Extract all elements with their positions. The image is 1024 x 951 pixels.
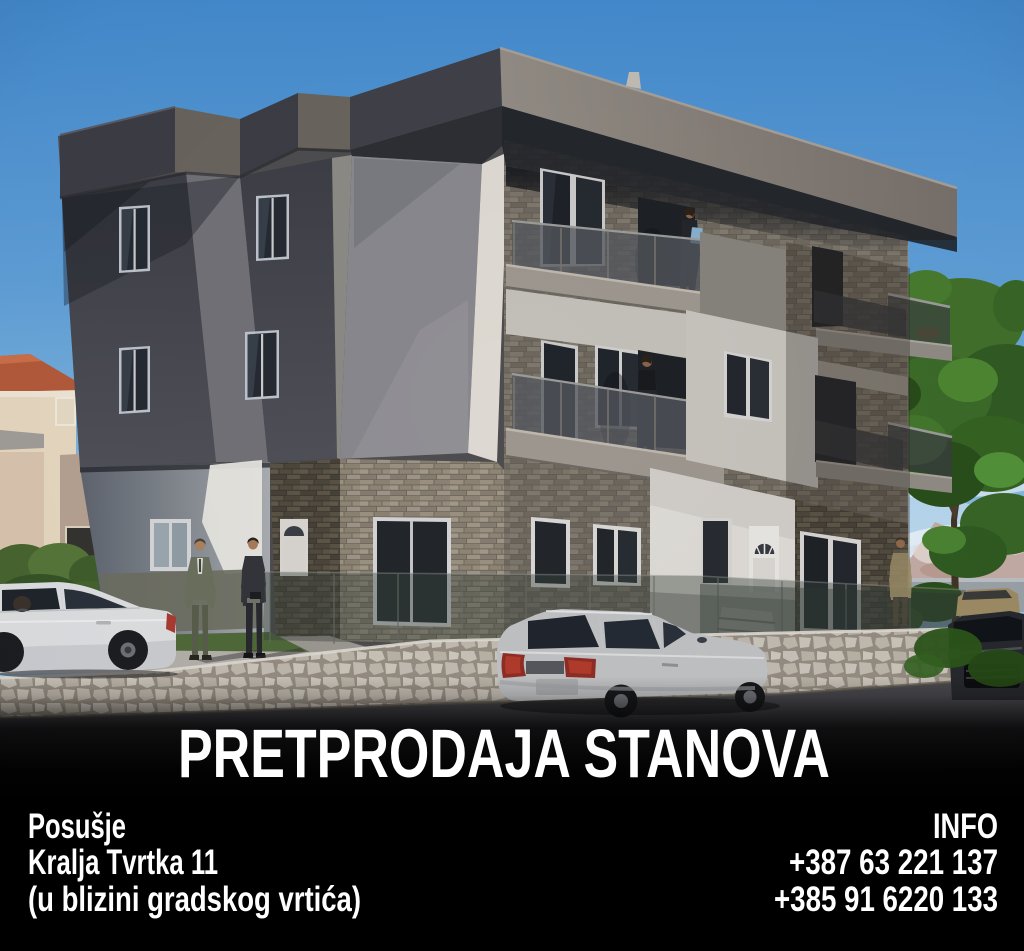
svg-text:PRETPRODAJA STANOVA: PRETPRODAJA STANOVA bbox=[178, 715, 830, 792]
svg-text:Posušje: Posušje bbox=[28, 807, 126, 846]
svg-text:INFO: INFO bbox=[933, 807, 998, 846]
svg-text:+385 91 6220 133: +385 91 6220 133 bbox=[774, 880, 998, 919]
svg-text:(u blizini gradskog vrtića): (u blizini gradskog vrtića) bbox=[28, 880, 361, 919]
svg-text:Kralja Tvrtka 11: Kralja Tvrtka 11 bbox=[28, 843, 218, 882]
svg-text:+387 63 221 137: +387 63 221 137 bbox=[789, 843, 998, 882]
